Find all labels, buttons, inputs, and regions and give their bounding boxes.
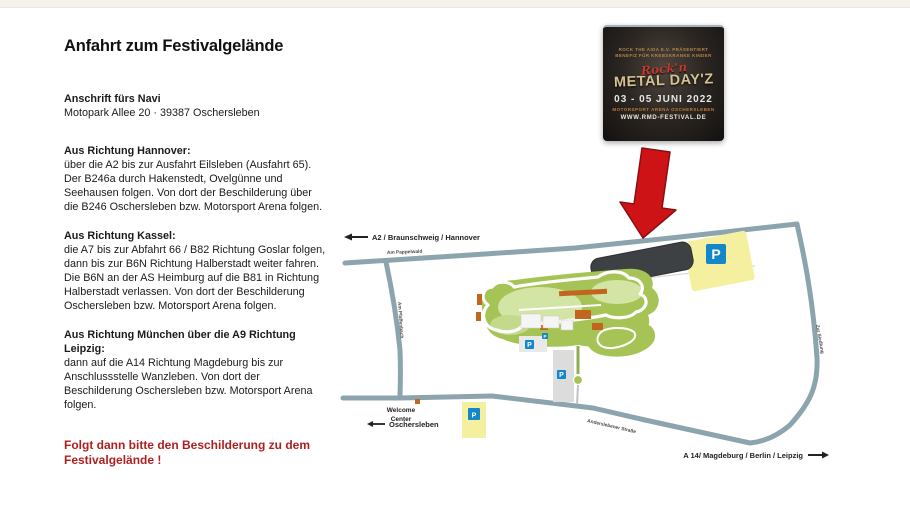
welcome-center-line1: Welcome [387, 407, 416, 414]
section-muenchen-body: dann auf die A14 Richtung Magdeburg bis … [64, 356, 326, 412]
arena-building [592, 323, 603, 330]
festival-pointer-arrow-icon [620, 148, 676, 238]
stand-west [477, 294, 482, 305]
parking-letter: P [711, 246, 720, 262]
parking-letter: P [472, 413, 477, 420]
festival-signage-note: Folgt dann bitte den Beschilderung zu de… [64, 438, 326, 468]
poster-venue: MOTORSPORT ARENA OSCHERSLEBEN [612, 107, 714, 112]
driveway-south [577, 385, 578, 404]
pit-building [561, 320, 573, 330]
pit-building [543, 316, 559, 328]
poster-benefit-line: BENEFIZ FÜR KREBSKRANKE KINDER [615, 53, 712, 58]
right-arrow-icon [822, 452, 829, 459]
roundabout [574, 376, 583, 385]
section-hannover-body: über die A2 bis zur Ausfahrt Eilsleben (… [64, 158, 326, 214]
left-arrow-icon [344, 234, 352, 241]
poster-presenter-line: ROCK THE AIDA E.V. PRÄSENTIERT [619, 47, 709, 52]
festival-poster: ROCK THE AIDA E.V. PRÄSENTIERT BENEFIZ F… [603, 25, 724, 141]
a14-direction-label: A 14/ Magdeburg / Berlin / Leipzig [683, 451, 829, 460]
section-kassel-body: die A7 bis zur Abfahrt 66 / B82 Richtung… [64, 243, 326, 313]
section-kassel-heading: Aus Richtung Kassel: [64, 229, 326, 243]
oschersleben-direction-label: Oschersleben [367, 420, 439, 429]
directions-article: Anfahrt zum Festivalgelände Anschrift fü… [64, 36, 326, 468]
parking-letter: P [527, 342, 532, 349]
a2-label-text: A2 / Braunschweig / Hannover [372, 233, 480, 242]
a2-direction-label: A2 / Braunschweig / Hannover [344, 233, 480, 242]
poster-date: 03 - 05 JUNI 2022 [614, 94, 713, 105]
pit-building [521, 314, 541, 328]
arena-building [575, 310, 591, 319]
section-hannover-heading: Aus Richtung Hannover: [64, 144, 326, 158]
page-title: Anfahrt zum Festivalgelände [64, 36, 326, 56]
left-arrow-icon [367, 421, 373, 427]
section-muenchen: Aus Richtung München über die A9 Richtun… [64, 328, 326, 412]
oschersleben-label-text: Oschersleben [389, 420, 439, 429]
section-hannover: Aus Richtung Hannover: über die A2 bis z… [64, 144, 326, 214]
street-label-bottom: Anderslebener Straße [587, 418, 637, 435]
parking-letter: P [559, 372, 564, 379]
page-top-strip [0, 0, 910, 8]
navi-address: Motopark Allee 20 · 39387 Oschersleben [64, 106, 326, 120]
navi-heading: Anschrift fürs Navi [64, 92, 326, 106]
parking-letter: P [543, 334, 546, 339]
poster-title: METAL DAY'Z [613, 71, 713, 90]
section-muenchen-heading: Aus Richtung München über die A9 Richtun… [64, 328, 326, 356]
street-label-top: Am Pappelwald [387, 249, 423, 256]
section-kassel: Aus Richtung Kassel: die A7 bis zur Abfa… [64, 229, 326, 313]
poster-website: WWW.RMD-FESTIVAL.DE [621, 115, 707, 121]
a14-label-text: A 14/ Magdeburg / Berlin / Leipzig [683, 451, 803, 460]
stand-west [476, 312, 481, 321]
navi-address-block: Anschrift fürs Navi Motopark Allee 20 · … [64, 92, 326, 120]
welcome-center-marker [415, 399, 420, 404]
site-map: P P P P P A2 / Braunschweig / Hannover A… [335, 140, 910, 475]
